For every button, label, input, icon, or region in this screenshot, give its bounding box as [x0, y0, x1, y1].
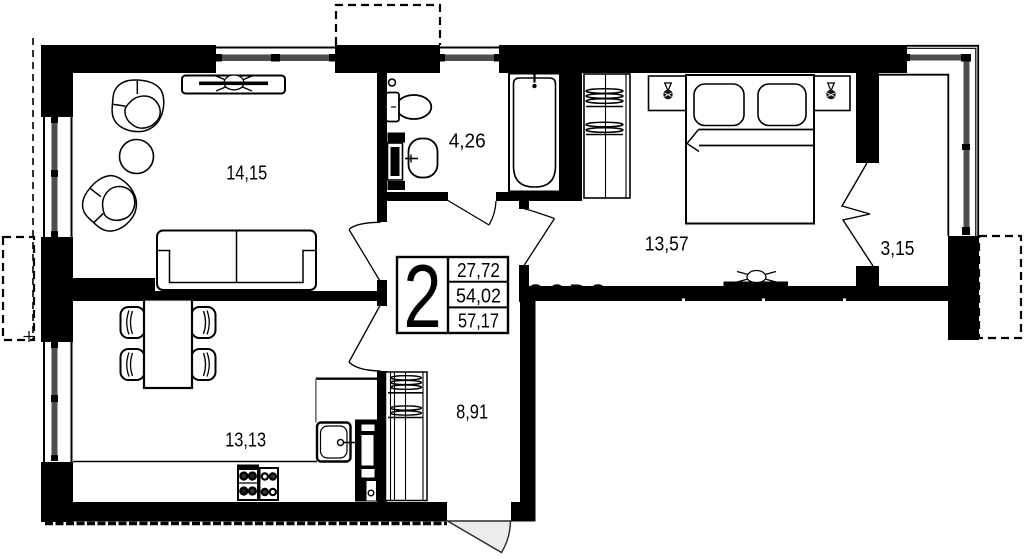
svg-text:13,57: 13,57 [645, 234, 689, 256]
svg-text:27,72: 27,72 [457, 260, 500, 282]
svg-text:8,91: 8,91 [456, 402, 488, 424]
svg-text:13,13: 13,13 [225, 430, 266, 452]
svg-text:2: 2 [404, 246, 442, 346]
svg-text:3,15: 3,15 [881, 238, 915, 260]
svg-text:57,17: 57,17 [458, 311, 499, 333]
svg-text:4,26: 4,26 [449, 131, 486, 153]
svg-text:54,02: 54,02 [456, 286, 501, 308]
svg-text:14,15: 14,15 [226, 163, 267, 185]
